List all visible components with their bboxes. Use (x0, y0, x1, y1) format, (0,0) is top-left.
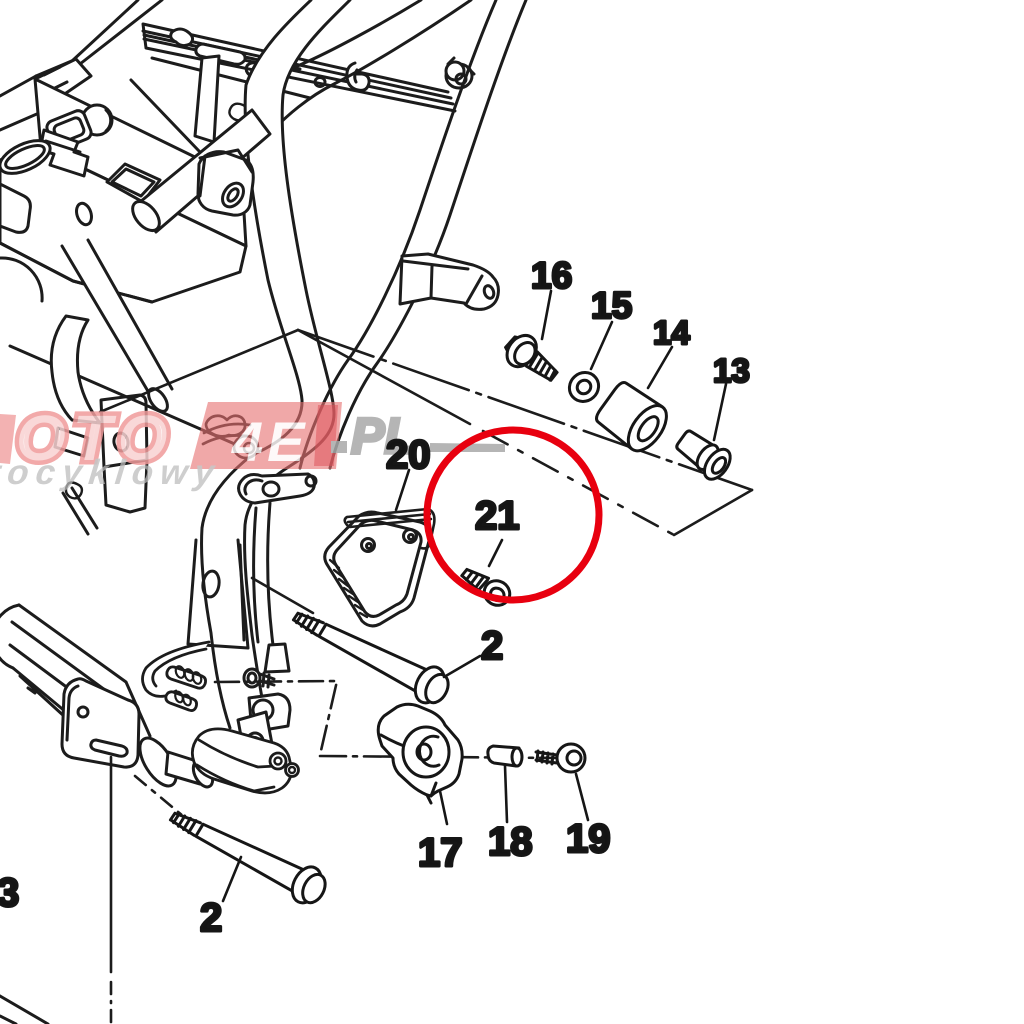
svg-text:16: 16 (531, 255, 572, 296)
svg-text:14: 14 (653, 314, 690, 351)
svg-text:3: 3 (0, 871, 19, 915)
svg-text:15: 15 (591, 285, 632, 326)
svg-text:4E: 4E (231, 410, 309, 473)
svg-text:19: 19 (566, 817, 611, 861)
svg-text:21: 21 (475, 494, 520, 538)
svg-text:13: 13 (713, 352, 750, 389)
svg-text:20: 20 (386, 433, 431, 477)
svg-text:17: 17 (418, 831, 463, 875)
svg-text:2: 2 (481, 624, 503, 668)
svg-text:18: 18 (488, 820, 533, 864)
svg-text:motocyklowy: motocyklowy (0, 453, 223, 492)
svg-text:2: 2 (200, 896, 222, 940)
